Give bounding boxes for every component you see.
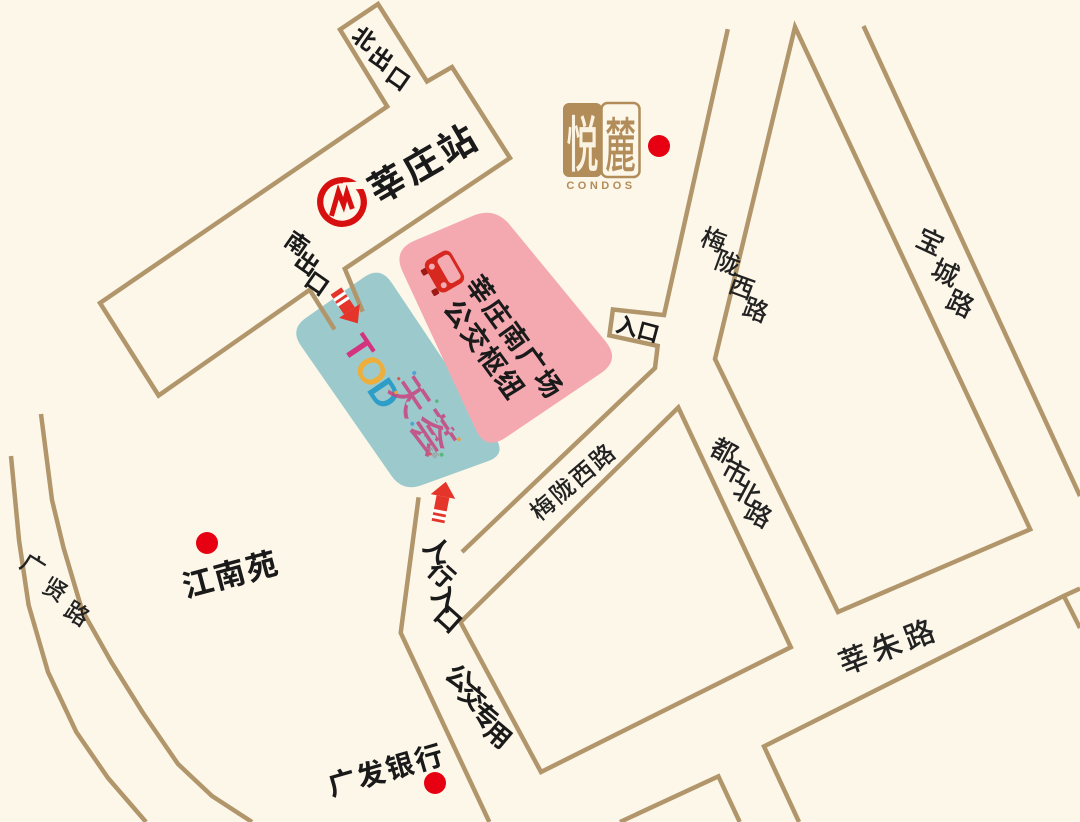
svg-text:CONDOS: CONDOS	[566, 180, 635, 192]
svg-text:麓: 麓	[605, 98, 636, 185]
svg-text:悦: 悦	[566, 97, 598, 186]
